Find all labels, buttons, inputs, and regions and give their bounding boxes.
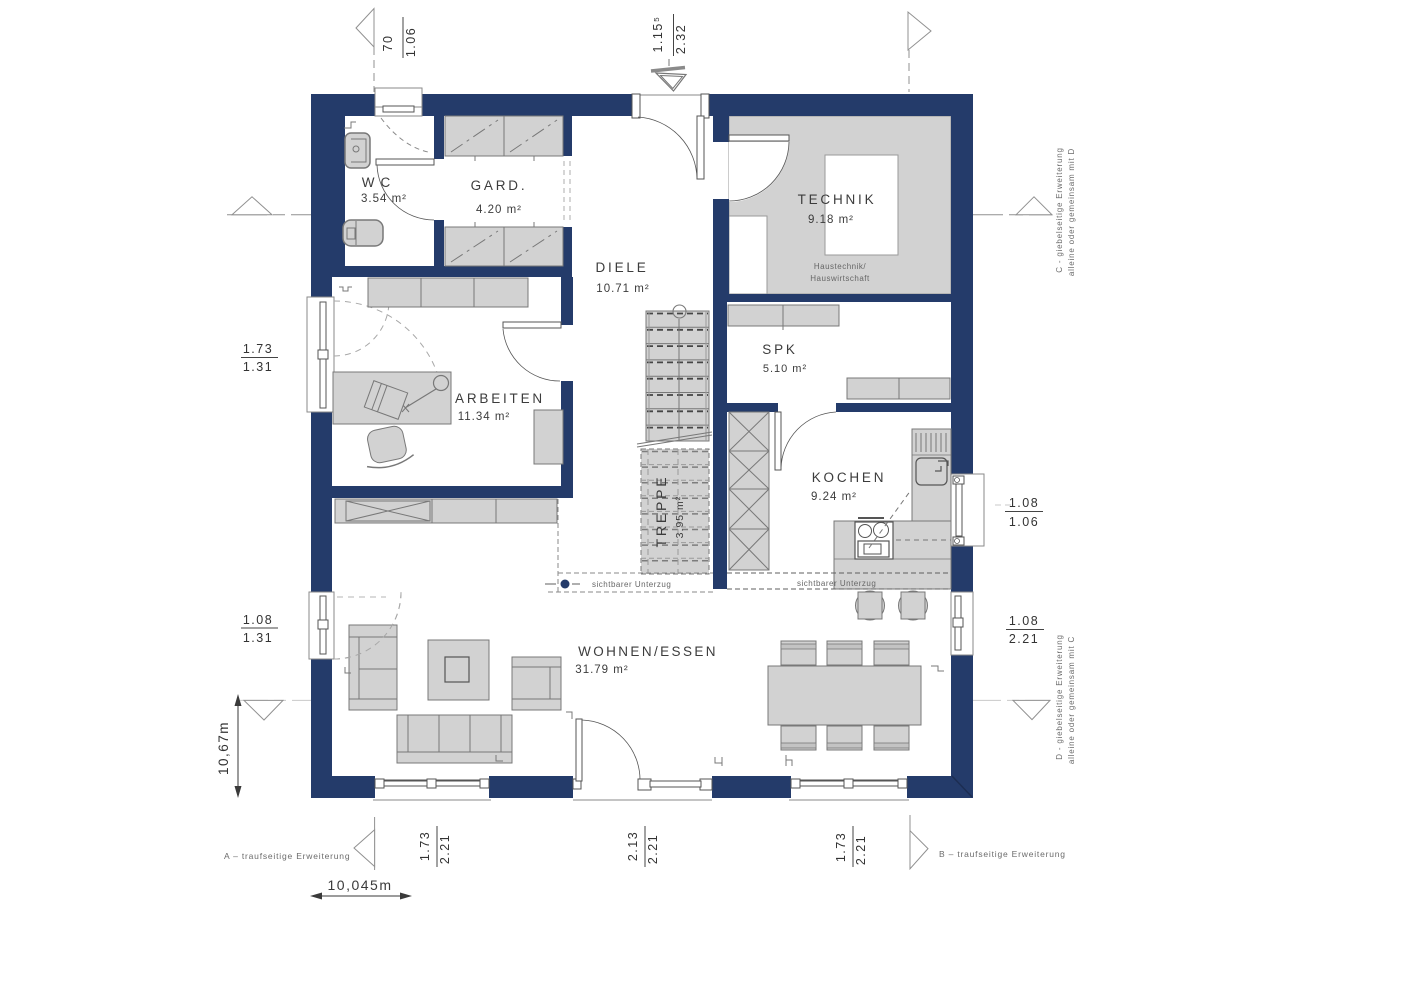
svg-text:9.24 m²: 9.24 m² bbox=[811, 491, 857, 503]
svg-text:KOCHEN: KOCHEN bbox=[812, 470, 887, 485]
svg-text:Hauswirtschaft: Hauswirtschaft bbox=[810, 274, 870, 283]
svg-text:ARBEITEN: ARBEITEN bbox=[455, 391, 545, 406]
svg-text:1.08: 1.08 bbox=[1009, 496, 1039, 510]
svg-text:10,67m: 10,67m bbox=[216, 721, 231, 775]
svg-text:1.31: 1.31 bbox=[243, 631, 273, 645]
svg-text:4.20 m²: 4.20 m² bbox=[476, 204, 522, 216]
svg-text:C - giebelseitige Erweiterung: C - giebelseitige Erweiterung bbox=[1055, 147, 1064, 272]
svg-text:sichtbarer Unterzug: sichtbarer Unterzug bbox=[797, 579, 876, 588]
svg-text:9.18 m²: 9.18 m² bbox=[808, 214, 854, 226]
svg-text:1.06: 1.06 bbox=[1009, 515, 1039, 529]
svg-text:10,045m: 10,045m bbox=[328, 877, 393, 893]
svg-text:alleine oder gemeinsam mit D: alleine oder gemeinsam mit D bbox=[1067, 148, 1076, 276]
svg-text:WC: WC bbox=[362, 175, 397, 190]
svg-text:1.08: 1.08 bbox=[1009, 614, 1039, 628]
svg-text:GARD.: GARD. bbox=[471, 178, 528, 193]
svg-text:1.15⁵: 1.15⁵ bbox=[651, 15, 665, 52]
svg-text:1.06: 1.06 bbox=[404, 27, 418, 57]
svg-text:70: 70 bbox=[381, 35, 395, 52]
svg-text:sichtbarer Unterzug: sichtbarer Unterzug bbox=[592, 580, 671, 589]
svg-text:2.32: 2.32 bbox=[674, 24, 688, 54]
svg-text:3.54 m²: 3.54 m² bbox=[361, 193, 407, 205]
svg-text:1.73: 1.73 bbox=[834, 832, 848, 862]
svg-text:10.71 m²: 10.71 m² bbox=[596, 283, 649, 295]
svg-text:TECHNIK: TECHNIK bbox=[798, 192, 877, 207]
svg-text:1.31: 1.31 bbox=[243, 360, 273, 374]
svg-text:DIELE: DIELE bbox=[595, 260, 648, 275]
svg-text:D - giebelseitige Erweiterung: D - giebelseitige Erweiterung bbox=[1055, 634, 1064, 759]
svg-text:11.34 m²: 11.34 m² bbox=[458, 411, 511, 423]
svg-text:2.21: 2.21 bbox=[854, 835, 868, 865]
svg-text:B – traufseitige Erweiterung: B – traufseitige Erweiterung bbox=[939, 849, 1066, 859]
svg-text:2.21: 2.21 bbox=[646, 834, 660, 864]
svg-text:TREPPE: TREPPE bbox=[653, 475, 669, 548]
svg-text:1.73: 1.73 bbox=[418, 831, 432, 861]
svg-text:WOHNEN/ESSEN: WOHNEN/ESSEN bbox=[578, 644, 718, 659]
svg-text:2.21: 2.21 bbox=[1009, 632, 1039, 646]
svg-text:SPK: SPK bbox=[762, 342, 797, 357]
svg-text:5.10 m²: 5.10 m² bbox=[763, 363, 807, 375]
svg-text:31.79 m²: 31.79 m² bbox=[575, 664, 628, 676]
svg-text:2.13: 2.13 bbox=[626, 831, 640, 861]
svg-text:2.21: 2.21 bbox=[438, 834, 452, 864]
svg-text:A – traufseitige Erweiterung: A – traufseitige Erweiterung bbox=[224, 851, 350, 861]
svg-text:alleine oder gemeinsam mit C: alleine oder gemeinsam mit C bbox=[1067, 636, 1076, 764]
svg-text:3.95 m²: 3.95 m² bbox=[674, 496, 686, 539]
svg-text:1.73: 1.73 bbox=[243, 342, 273, 356]
svg-text:Haustechnik/: Haustechnik/ bbox=[814, 262, 867, 271]
svg-text:1.08: 1.08 bbox=[243, 613, 273, 627]
